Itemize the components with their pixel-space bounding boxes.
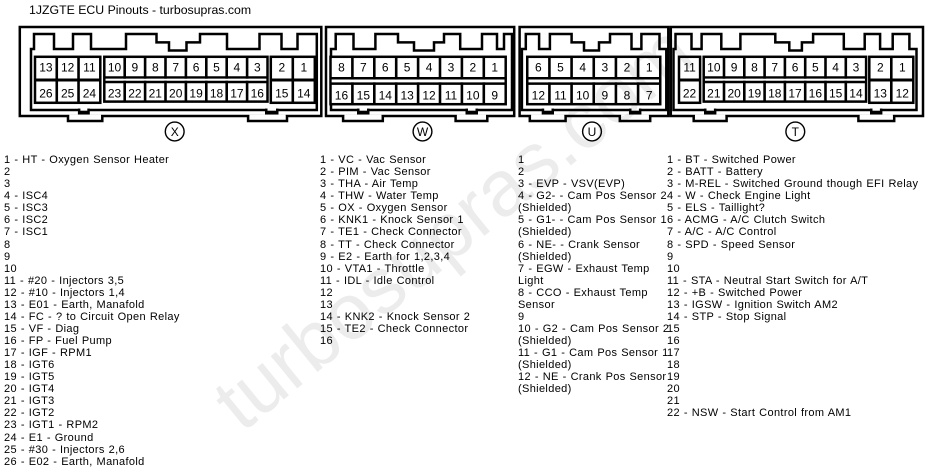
svg-text:14: 14 <box>849 86 863 100</box>
svg-text:18: 18 <box>210 86 224 100</box>
svg-text:1: 1 <box>899 61 906 75</box>
svg-text:13: 13 <box>39 61 53 75</box>
svg-text:3: 3 <box>601 61 608 75</box>
svg-text:T: T <box>792 125 800 139</box>
svg-text:9: 9 <box>601 88 608 102</box>
svg-text:12: 12 <box>532 88 546 102</box>
svg-text:2: 2 <box>470 61 477 75</box>
svg-text:11: 11 <box>445 88 458 102</box>
svg-text:5: 5 <box>404 61 411 75</box>
svg-text:15: 15 <box>275 86 289 100</box>
svg-text:3: 3 <box>853 61 860 75</box>
svg-text:1: 1 <box>491 61 498 75</box>
svg-text:4: 4 <box>234 61 241 75</box>
svg-text:20: 20 <box>727 86 741 100</box>
svg-text:16: 16 <box>251 86 265 100</box>
svg-text:3: 3 <box>448 61 455 75</box>
svg-text:13: 13 <box>874 86 888 100</box>
svg-text:21: 21 <box>707 86 721 100</box>
svg-text:4: 4 <box>426 61 433 75</box>
svg-text:12: 12 <box>422 88 436 102</box>
svg-text:24: 24 <box>83 86 97 100</box>
svg-text:6: 6 <box>535 61 542 75</box>
svg-text:15: 15 <box>829 86 843 100</box>
svg-text:17: 17 <box>788 86 802 100</box>
svg-text:8: 8 <box>338 61 345 75</box>
svg-text:13: 13 <box>400 88 414 102</box>
svg-text:12: 12 <box>896 86 910 100</box>
svg-text:2: 2 <box>624 61 631 75</box>
svg-text:7: 7 <box>172 61 179 75</box>
svg-text:W: W <box>417 125 429 139</box>
svg-text:6: 6 <box>382 61 389 75</box>
svg-text:16: 16 <box>335 88 349 102</box>
svg-text:19: 19 <box>748 86 762 100</box>
svg-text:10: 10 <box>576 88 590 102</box>
svg-text:11: 11 <box>83 61 96 75</box>
svg-text:7: 7 <box>360 61 367 75</box>
svg-text:9: 9 <box>731 61 738 75</box>
svg-text:9: 9 <box>132 61 139 75</box>
svg-text:2: 2 <box>278 61 285 75</box>
svg-text:1: 1 <box>646 61 653 75</box>
svg-text:6: 6 <box>792 61 799 75</box>
svg-text:4: 4 <box>579 61 586 75</box>
svg-text:14: 14 <box>379 88 393 102</box>
svg-text:11: 11 <box>554 88 567 102</box>
svg-text:23: 23 <box>108 86 122 100</box>
svg-text:5: 5 <box>812 61 819 75</box>
svg-text:10: 10 <box>108 61 122 75</box>
svg-text:16: 16 <box>809 86 823 100</box>
svg-text:26: 26 <box>39 86 53 100</box>
svg-text:10: 10 <box>466 88 480 102</box>
svg-text:5: 5 <box>213 61 220 75</box>
svg-text:8: 8 <box>624 88 631 102</box>
svg-text:11: 11 <box>683 61 696 75</box>
svg-text:7: 7 <box>646 88 653 102</box>
svg-text:6: 6 <box>193 61 200 75</box>
svg-text:3: 3 <box>254 61 261 75</box>
svg-text:15: 15 <box>357 88 371 102</box>
svg-text:17: 17 <box>230 86 244 100</box>
svg-text:22: 22 <box>128 86 142 100</box>
svg-text:25: 25 <box>61 86 75 100</box>
svg-text:8: 8 <box>751 61 758 75</box>
svg-text:1: 1 <box>300 61 307 75</box>
svg-text:12: 12 <box>61 61 75 75</box>
svg-text:4: 4 <box>832 61 839 75</box>
svg-text:U: U <box>588 125 597 139</box>
svg-text:19: 19 <box>189 86 203 100</box>
svg-text:20: 20 <box>169 86 183 100</box>
svg-text:X: X <box>171 125 179 139</box>
svg-text:18: 18 <box>768 86 782 100</box>
svg-text:22: 22 <box>683 86 697 100</box>
svg-text:10: 10 <box>707 61 721 75</box>
svg-text:14: 14 <box>297 86 311 100</box>
svg-text:8: 8 <box>152 61 159 75</box>
svg-text:7: 7 <box>771 61 778 75</box>
svg-text:5: 5 <box>557 61 564 75</box>
svg-text:9: 9 <box>491 88 498 102</box>
svg-text:2: 2 <box>877 61 884 75</box>
svg-text:21: 21 <box>149 86 163 100</box>
